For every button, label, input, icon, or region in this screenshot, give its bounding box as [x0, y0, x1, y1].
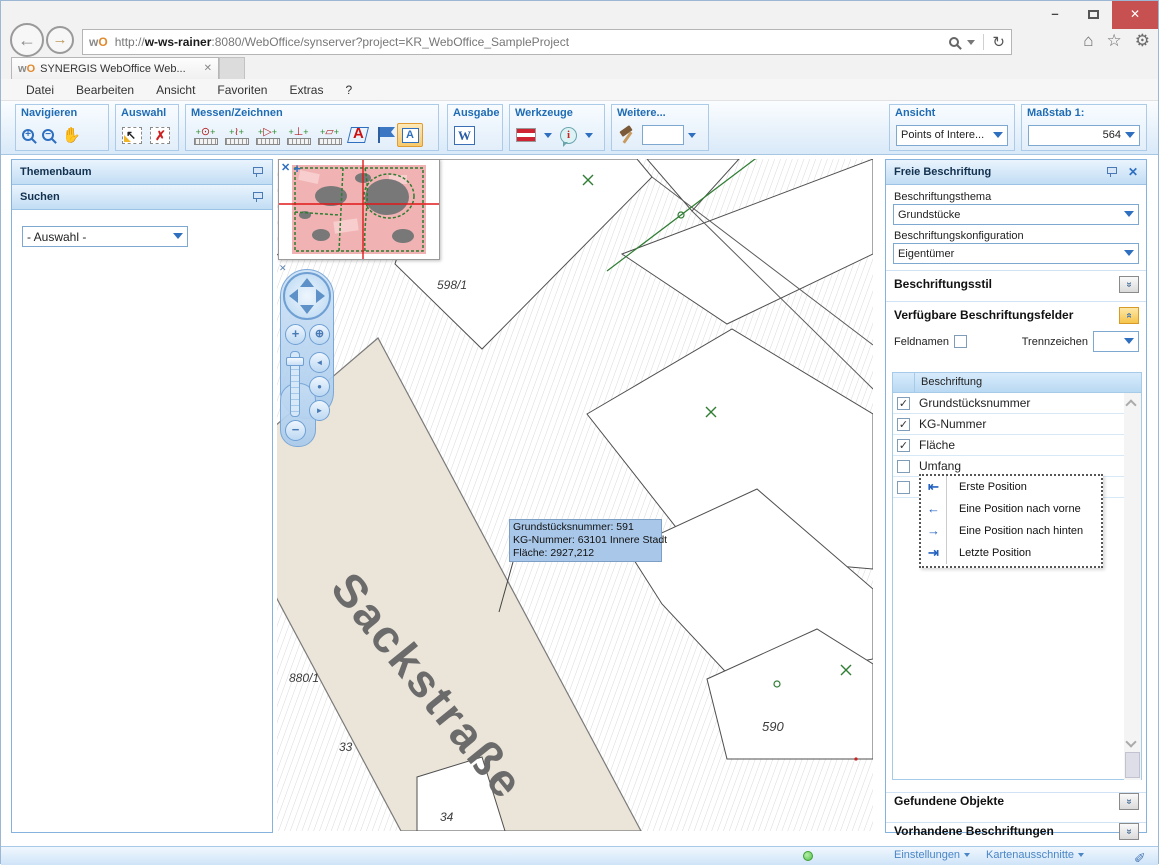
- beschriftung-field-list: Beschriftung ✓ Grundstücksnummer ✓ KG-Nu…: [892, 372, 1142, 780]
- next-extent-button[interactable]: [309, 400, 330, 421]
- austria-flag-icon[interactable]: [516, 128, 536, 142]
- row-checkbox[interactable]: ✓: [897, 418, 910, 431]
- collapse-felder-button[interactable]: [1119, 307, 1139, 324]
- group-ansicht: Ansicht Points of Intere...: [889, 104, 1015, 151]
- titlebar: [1, 1, 1158, 29]
- kartenausschnitte-link[interactable]: Kartenausschnitte: [986, 849, 1084, 861]
- zoom-out-icon[interactable]: −: [42, 129, 54, 141]
- home-icon[interactable]: [1083, 31, 1093, 51]
- list-scrollbar[interactable]: [1124, 393, 1141, 780]
- pan-hand-icon[interactable]: [62, 126, 81, 145]
- suchen-header[interactable]: Suchen: [12, 185, 272, 210]
- position-context-menu: Erste Position Eine Position nach vorne …: [919, 474, 1103, 568]
- panel-close-icon[interactable]: [1128, 165, 1138, 179]
- divider: [983, 34, 984, 50]
- gefundene-objekte-section: Gefundene Objekte: [886, 788, 1146, 812]
- chevron-down-icon: [993, 132, 1003, 142]
- pan-compass[interactable]: [283, 272, 331, 320]
- settings-gear-icon[interactable]: [1135, 31, 1150, 51]
- red-point-marker: [854, 757, 857, 760]
- row-checkbox[interactable]: ✓: [897, 439, 910, 452]
- massstab-combo[interactable]: 564: [1028, 125, 1140, 146]
- status-bar: Einstellungen Kartenausschnitte: [1, 846, 1158, 865]
- thema-label: Beschriftungsthema: [886, 186, 1146, 204]
- overview-canvas: [279, 160, 439, 259]
- zoom-slider-handle[interactable]: [286, 357, 304, 366]
- parcel-label: 34: [440, 810, 454, 824]
- chevron-down-icon: [964, 853, 970, 860]
- row-checkbox[interactable]: ✓: [897, 397, 910, 410]
- url-row: wO http://w-ws-rainer:8080/WebOffice/syn…: [1, 29, 1158, 57]
- tab-row: wO SYNERGIS WebOffice Web...: [1, 57, 1158, 79]
- redline-text-icon[interactable]: A: [347, 124, 371, 146]
- group-ausgabe: Ausgabe W: [447, 104, 503, 151]
- group-weitere: Weitere...: [611, 104, 709, 151]
- expand-gefundene-button[interactable]: [1119, 793, 1139, 810]
- themenbaum-header[interactable]: Themenbaum: [12, 160, 272, 185]
- menu-item-letzte-position[interactable]: Letzte Position: [921, 542, 1101, 564]
- chevron-down-icon: [1078, 853, 1084, 860]
- pan-down-icon[interactable]: [300, 305, 314, 314]
- zoom-in-icon[interactable]: +: [22, 129, 34, 141]
- group-auswahl: Auswahl: [115, 104, 179, 151]
- menu-extras[interactable]: Extras: [278, 83, 334, 97]
- word-export-icon[interactable]: W: [454, 126, 475, 145]
- pan-up-icon[interactable]: [300, 278, 314, 287]
- previous-extent-button[interactable]: [309, 352, 330, 373]
- parcel-label: 590: [762, 719, 784, 734]
- menu-item-erste-position[interactable]: Erste Position: [921, 476, 1101, 498]
- row-checkbox[interactable]: [897, 460, 910, 473]
- browser-tab[interactable]: wO SYNERGIS WebOffice Web...: [11, 57, 219, 79]
- flag-dropdown-icon[interactable]: [544, 133, 552, 142]
- weitere-input[interactable]: [642, 125, 684, 145]
- edit-pen-icon[interactable]: [1134, 848, 1146, 865]
- group-navigieren: Navigieren + −: [15, 104, 109, 151]
- nav-widget-close-icon[interactable]: [279, 263, 287, 274]
- trennzeichen-dropdown[interactable]: [1093, 331, 1139, 352]
- row-checkbox[interactable]: [897, 481, 910, 494]
- chevron-down-icon: [1125, 132, 1135, 142]
- free-label-tool-active-icon[interactable]: A: [397, 123, 423, 147]
- freie-beschriftung-header[interactable]: Freie Beschriftung: [886, 160, 1146, 185]
- browser-back-icon[interactable]: [10, 23, 44, 57]
- konfig-label: Beschriftungskonfiguration: [886, 225, 1146, 243]
- menu-favoriten[interactable]: Favoriten: [206, 83, 278, 97]
- info-dropdown-icon[interactable]: [585, 133, 593, 142]
- einstellungen-link[interactable]: Einstellungen: [894, 849, 970, 861]
- measure-point-icon[interactable]: +⊙+: [192, 126, 219, 145]
- suchen-auswahl-dropdown[interactable]: - Auswahl -: [22, 226, 188, 247]
- pan-left-icon[interactable]: [289, 289, 298, 303]
- measure-line-icon[interactable]: +≀+: [223, 126, 250, 145]
- zoom-out-button[interactable]: [285, 420, 306, 441]
- parcel-label: 33: [339, 740, 353, 754]
- new-tab-stub[interactable]: [219, 57, 245, 79]
- position-forward-icon: [921, 498, 947, 520]
- menu-bar: Datei Bearbeiten Ansicht Favoriten Extra…: [1, 79, 1158, 101]
- group-massstab: Maßstab 1: 564: [1021, 104, 1147, 151]
- chevron-down-icon: [1124, 211, 1134, 221]
- menu-datei[interactable]: Datei: [15, 83, 65, 97]
- parcel-label: 598/1: [437, 278, 467, 292]
- feldnamen-checkbox[interactable]: [954, 335, 967, 348]
- list-item-grundstuecksnummer[interactable]: ✓ Grundstücksnummer: [893, 393, 1141, 414]
- center-button[interactable]: [309, 376, 330, 397]
- maximize-button[interactable]: [1074, 1, 1112, 29]
- measure-area-icon[interactable]: +▷+: [254, 126, 281, 145]
- flag-icon[interactable]: [375, 126, 393, 144]
- overview-map[interactable]: [278, 159, 440, 260]
- group-messen-zeichnen: Messen/Zeichnen +⊙+ +≀+ +▷+ +⊥+ +▱+ A A: [185, 104, 439, 151]
- address-bar[interactable]: wO http://w-ws-rainer:8080/WebOffice/syn…: [82, 29, 1012, 55]
- left-panel: Themenbaum Suchen - Auswahl -: [11, 159, 273, 833]
- beschriftungsfelder-section: Verfügbare Beschriftungsfelder: [886, 302, 1146, 326]
- feature-tooltip: Grundstücksnummer: 591 KG-Nummer: 63101 …: [509, 519, 662, 562]
- scroll-down-icon[interactable]: [1125, 736, 1136, 747]
- last-position-icon: [921, 542, 947, 564]
- beschriftungsstil-section: Beschriftungsstil: [886, 271, 1146, 295]
- site-favicon: wO: [89, 35, 108, 49]
- position-backward-icon: [921, 520, 947, 542]
- close-window-button[interactable]: [1112, 1, 1158, 29]
- status-ok-icon: [803, 851, 813, 861]
- list-item-flaeche[interactable]: ✓ Fläche: [893, 435, 1141, 456]
- map-viewport[interactable]: Sackstraße 598/1 880/1 33 34 590 Grundst…: [277, 159, 873, 831]
- browser-window: wO http://w-ws-rainer:8080/WebOffice/syn…: [0, 0, 1159, 864]
- pin-icon[interactable]: [252, 191, 264, 203]
- favorites-icon[interactable]: [1107, 31, 1122, 51]
- feldnamen-row: Feldnamen Trennzeichen: [886, 326, 1146, 352]
- minimize-button[interactable]: [1036, 1, 1074, 29]
- expand-vorhandene-button[interactable]: [1119, 823, 1139, 840]
- zoom-in-button[interactable]: [285, 324, 306, 345]
- menu-help[interactable]: ?: [334, 83, 363, 97]
- select-icon[interactable]: [122, 127, 142, 144]
- refresh-icon[interactable]: [992, 33, 1005, 51]
- measure-perpendicular-icon[interactable]: +⊥+: [285, 126, 312, 145]
- pin-icon[interactable]: [252, 166, 264, 178]
- freie-beschriftung-panel: Freie Beschriftung Beschriftungsthema Gr…: [885, 159, 1147, 833]
- scroll-up-icon[interactable]: [1125, 399, 1136, 410]
- tab-title: SYNERGIS WebOffice Web...: [40, 63, 199, 75]
- tab-favicon: wO: [18, 63, 35, 75]
- overview-move-icon[interactable]: [293, 161, 301, 176]
- konfig-dropdown[interactable]: Eigentümer: [893, 243, 1139, 264]
- expand-stil-button[interactable]: [1119, 276, 1139, 293]
- search-icon[interactable]: [949, 37, 959, 47]
- menu-item-position-hinten[interactable]: Eine Position nach hinten: [921, 520, 1101, 542]
- parcel-label: 880/1: [289, 671, 319, 685]
- full-extent-button[interactable]: [309, 324, 330, 345]
- chevron-down-icon: [173, 233, 183, 243]
- vorhandene-beschriftungen-section: Vorhandene Beschriftungen: [886, 818, 1146, 842]
- chevron-down-icon: [1124, 250, 1134, 260]
- pin-icon[interactable]: [1106, 166, 1118, 178]
- group-werkzeuge: Werkzeuge i: [509, 104, 605, 151]
- toolbar: Navigieren + − Auswahl Messen/Zeichnen +…: [1, 101, 1158, 155]
- thema-dropdown[interactable]: Grundstücke: [893, 204, 1139, 225]
- menu-bearbeiten[interactable]: Bearbeiten: [65, 83, 145, 97]
- scrollbar-thumb[interactable]: [1125, 752, 1140, 778]
- measure-polygon-icon[interactable]: +▱+: [316, 126, 343, 145]
- clear-selection-icon[interactable]: [150, 127, 170, 144]
- list-item-kg-nummer[interactable]: ✓ KG-Nummer: [893, 414, 1141, 435]
- list-header: Beschriftung: [893, 373, 1141, 393]
- first-position-icon: [921, 476, 947, 498]
- browser-forward-icon[interactable]: [46, 26, 74, 54]
- hammer-tool-icon[interactable]: [618, 125, 638, 145]
- map-navigation-widget[interactable]: [278, 263, 336, 449]
- menu-item-position-vorne[interactable]: Eine Position nach vorne: [921, 498, 1101, 520]
- info-balloon-icon[interactable]: i: [560, 127, 577, 144]
- search-dropdown-icon[interactable]: [967, 40, 975, 49]
- weitere-dropdown-icon[interactable]: [688, 133, 696, 142]
- overview-close-icon[interactable]: [281, 161, 290, 176]
- pan-right-icon[interactable]: [316, 289, 325, 303]
- ansicht-dropdown[interactable]: Points of Intere...: [896, 125, 1008, 146]
- tab-close-icon[interactable]: [204, 63, 212, 74]
- menu-ansicht[interactable]: Ansicht: [145, 83, 206, 97]
- url-text: http://w-ws-rainer:8080/WebOffice/synser…: [115, 35, 950, 49]
- chevron-down-icon: [1124, 338, 1134, 348]
